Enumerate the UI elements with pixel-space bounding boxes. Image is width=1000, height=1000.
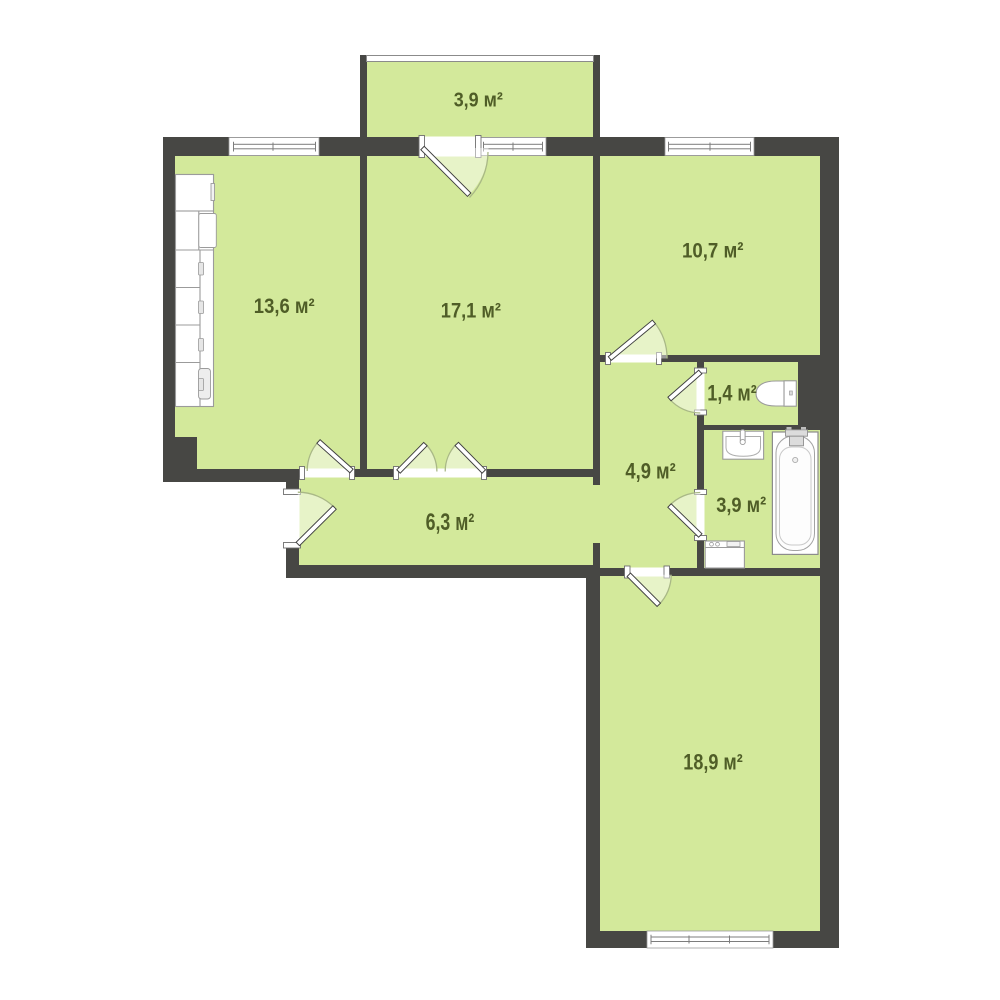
svg-text:13,6 м²: 13,6 м² — [254, 295, 315, 318]
svg-text:6,3 м²: 6,3 м² — [426, 509, 475, 536]
svg-text:3,9 м²: 3,9 м² — [454, 89, 503, 112]
svg-text:4,9 м²: 4,9 м² — [625, 459, 675, 484]
svg-text:3,9 м²: 3,9 м² — [716, 492, 766, 517]
svg-text:1,4 м²: 1,4 м² — [707, 381, 757, 406]
svg-text:17,1 м²: 17,1 м² — [441, 299, 501, 323]
svg-text:18,9 м²: 18,9 м² — [683, 750, 742, 775]
svg-text:10,7 м²: 10,7 м² — [682, 239, 744, 263]
